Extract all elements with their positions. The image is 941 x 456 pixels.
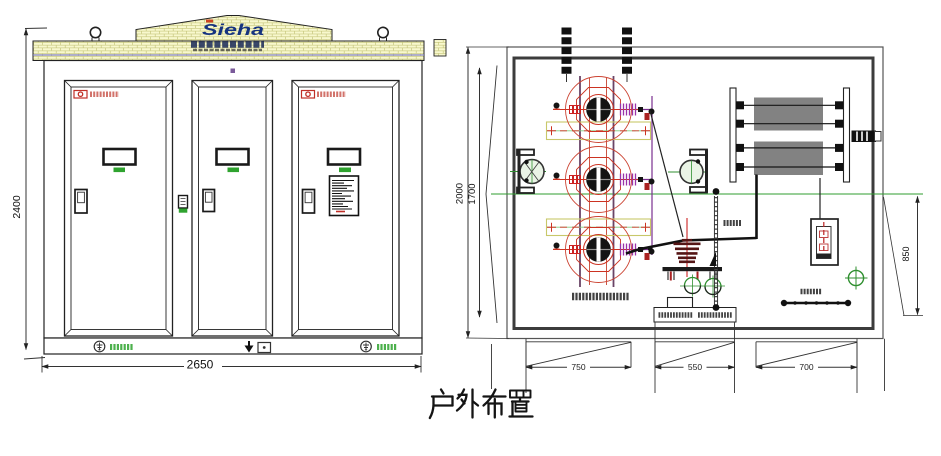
svg-text:Sieha: Sieha (202, 22, 264, 39)
svg-text:550: 550 (688, 362, 702, 372)
svg-text:2400: 2400 (11, 195, 23, 219)
svg-text:2000: 2000 (455, 183, 466, 204)
svg-text:1700: 1700 (467, 183, 478, 204)
svg-text:2650: 2650 (187, 358, 214, 372)
svg-text:850: 850 (901, 246, 911, 261)
svg-text:700: 700 (799, 362, 813, 372)
svg-text:750: 750 (571, 362, 585, 372)
